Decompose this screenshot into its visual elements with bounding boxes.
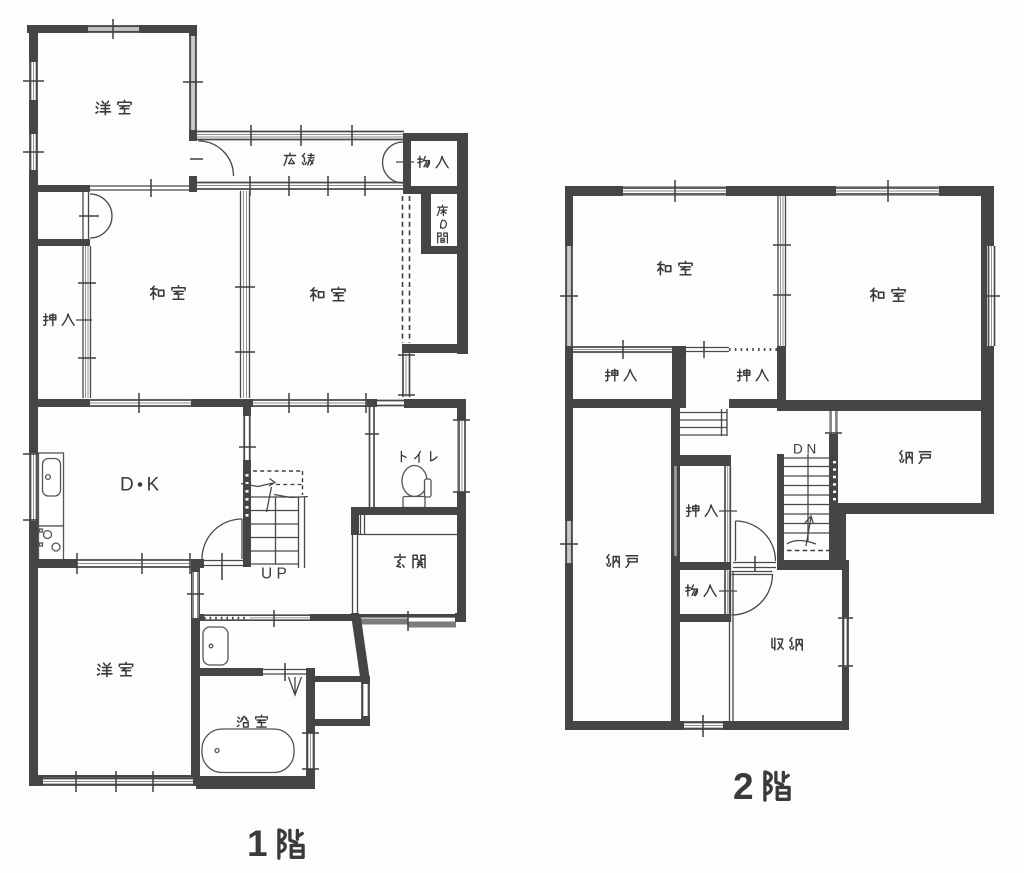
svg-text:D N: D N — [793, 442, 816, 457]
svg-text:2: 2 — [733, 766, 754, 807]
svg-text:1: 1 — [247, 823, 268, 864]
svg-text:K: K — [147, 475, 160, 496]
svg-text:U P: U P — [261, 566, 287, 583]
svg-text:D: D — [120, 475, 134, 496]
